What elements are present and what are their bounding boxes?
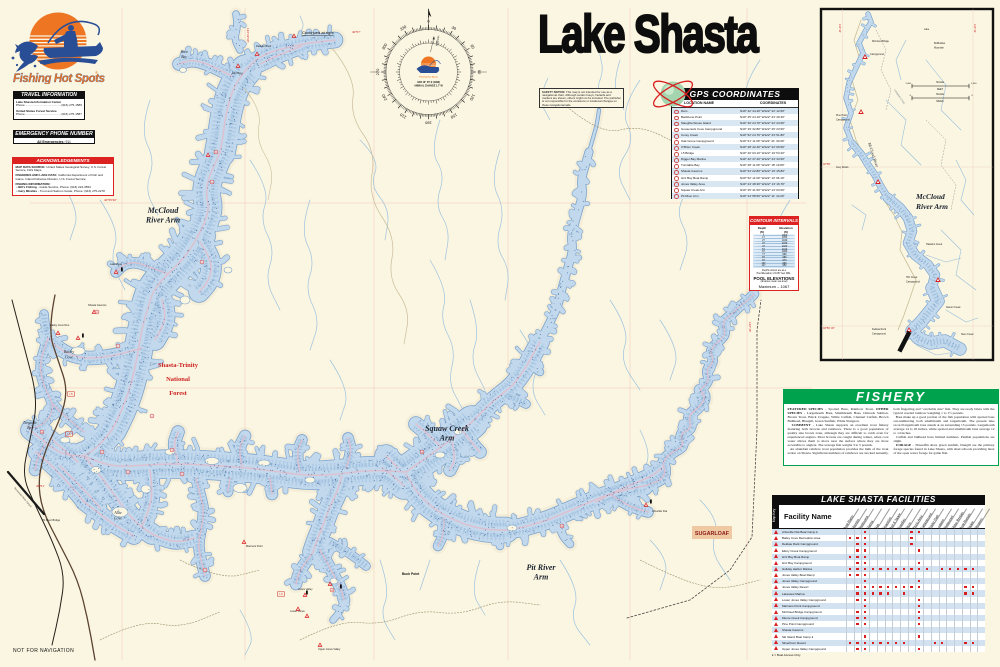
svg-text:River Arm: River Arm (915, 202, 948, 211)
svg-text:I-5: I-5 (279, 592, 283, 596)
svg-text:40°57': 40°57' (352, 30, 361, 34)
svg-text:I-5: I-5 (69, 392, 73, 396)
svg-text:240: 240 (380, 93, 388, 102)
svg-text:Fishing Hot Spots: Fishing Hot Spots (419, 76, 438, 79)
svg-text:Bollibokka: Bollibokka (934, 42, 946, 45)
svg-text:122°14': 122°14' (838, 24, 842, 33)
svg-text:210: 210 (398, 112, 407, 120)
svg-text:Squaw Creek: Squaw Creek (425, 424, 469, 433)
svg-text:122°15': 122°15' (748, 322, 752, 333)
svg-text:Mariners Point: Mariners Point (246, 544, 263, 548)
svg-text:2,000: 2,000 (971, 83, 977, 85)
svg-text:Arm: Arm (533, 573, 549, 582)
svg-text:Bay: Bay (181, 55, 187, 59)
svg-text:330: 330 (399, 24, 408, 32)
svg-text:McCloud Bridge: McCloud Bridge (872, 40, 890, 43)
svg-text:Jones Valley: Jones Valley (298, 587, 313, 591)
svg-text:300: 300 (381, 42, 389, 51)
svg-text:Hirz Bay: Hirz Bay (232, 71, 243, 75)
svg-text:Lake: Lake (924, 28, 930, 31)
svg-text:Dekkas Rock: Dekkas Rock (256, 44, 272, 48)
svg-text:Shasta Caverns: Shasta Caverns (88, 303, 107, 307)
svg-text:Grey Rocks: Grey Rocks (836, 166, 849, 169)
svg-text:122°12': 122°12' (973, 24, 977, 33)
svg-text:Forest: Forest (169, 390, 187, 397)
svg-text:270: 270 (375, 68, 380, 75)
svg-text:MILES: MILES (936, 100, 944, 103)
svg-text:Campground: Campground (906, 281, 920, 284)
svg-text:McCloud: McCloud (915, 192, 945, 201)
svg-text:40°56' 30": 40°56' 30" (823, 326, 835, 330)
svg-text:Campground: Campground (870, 53, 884, 56)
svg-text:Pine Point: Pine Point (836, 114, 847, 117)
svg-text:Cove: Cove (114, 516, 122, 521)
svg-text:Continued at right: Continued at right (302, 30, 334, 35)
svg-text:SCALE: SCALE (936, 81, 944, 84)
svg-text:Bailey: Bailey (64, 349, 74, 354)
svg-text:National: National (166, 376, 190, 383)
svg-text:SCALE: SCALE (936, 93, 944, 96)
svg-text:40°58': 40°58' (823, 162, 831, 166)
svg-text:Pit River Bridge: Pit River Bridge (42, 518, 61, 522)
svg-text:Nosoni Creek: Nosoni Creek (946, 306, 961, 309)
svg-text:®: ® (95, 70, 98, 75)
svg-text:SUGARLOAF: SUGARLOAF (695, 531, 730, 537)
svg-text:60: 60 (469, 43, 476, 50)
svg-text:Allie: Allie (113, 510, 122, 515)
svg-text:0: 0 (427, 19, 430, 24)
svg-text:Mountain: Mountain (934, 47, 945, 50)
svg-text:Dekkas Rock: Dekkas Rock (872, 328, 887, 331)
svg-text:FEET: FEET (937, 88, 944, 91)
svg-text:Campground: Campground (872, 333, 886, 336)
svg-text:Cove: Cove (65, 355, 73, 360)
svg-text:Hirz Creek: Hirz Creek (906, 276, 918, 279)
svg-text:30: 30 (451, 25, 458, 32)
svg-text:Stein Creek: Stein Creek (961, 333, 974, 336)
svg-text:120: 120 (468, 93, 476, 102)
svg-text:Upper Jones Valley: Upper Jones Valley (318, 647, 341, 651)
svg-text:Lakeshore: Lakeshore (110, 262, 123, 266)
svg-text:2,000: 2,000 (906, 83, 912, 85)
svg-text:Shasta-Trinity: Shasta-Trinity (158, 362, 199, 369)
svg-text:Magnetic: Magnetic (435, 34, 441, 46)
svg-text:Hawkins Creek: Hawkins Creek (926, 243, 943, 246)
svg-text:90: 90 (477, 70, 482, 75)
svg-text:Campground: Campground (836, 119, 850, 122)
svg-text:Turntable: Turntable (23, 421, 37, 425)
svg-text:Arm: Arm (439, 434, 455, 443)
svg-text:River Arm: River Arm (145, 216, 180, 225)
svg-text:150: 150 (449, 112, 458, 120)
svg-text:40°55'30": 40°55'30" (104, 198, 117, 202)
svg-text:Bay: Bay (27, 426, 33, 430)
svg-text:Fishing Hot Spots: Fishing Hot Spots (13, 73, 105, 84)
svg-text:Pit River: Pit River (526, 563, 556, 572)
svg-text:ANNUAL CHANGE 1.7' W: ANNUAL CHANGE 1.7' W (414, 85, 443, 88)
svg-text:Bailey Cove Rec.: Bailey Cove Rec. (50, 323, 70, 327)
svg-text:122°22'30": 122°22'30" (246, 28, 250, 43)
svg-text:Buck Point: Buck Point (402, 572, 420, 576)
svg-text:Arbuckle Flat: Arbuckle Flat (652, 509, 667, 513)
svg-text:40°51': 40°51' (36, 484, 45, 488)
svg-text:Shea: Shea (181, 50, 188, 54)
svg-text:McCloud: McCloud (147, 206, 180, 215)
svg-text:180: 180 (424, 120, 431, 125)
